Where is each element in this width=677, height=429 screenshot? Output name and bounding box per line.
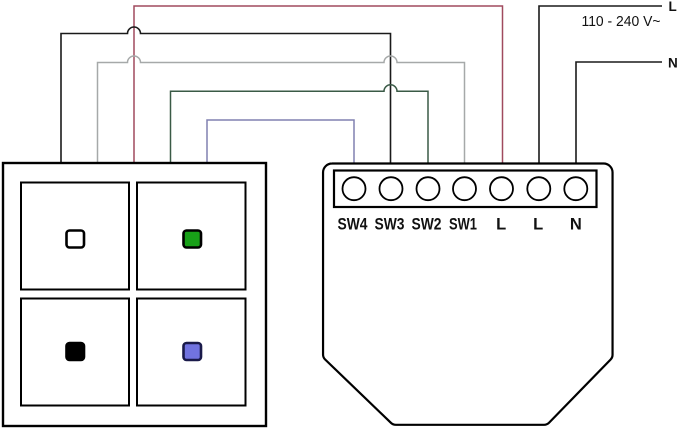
svg-text:SW3: SW3 — [375, 216, 405, 234]
svg-text:SW2: SW2 — [412, 216, 442, 234]
svg-text:SW4: SW4 — [338, 216, 369, 234]
svg-text:SW1: SW1 — [449, 216, 477, 234]
svg-text:L: L — [669, 0, 677, 14]
svg-text:110 - 240 V~: 110 - 240 V~ — [582, 14, 661, 30]
svg-text:N: N — [668, 56, 677, 71]
svg-text:L: L — [533, 216, 543, 234]
svg-text:L: L — [496, 216, 506, 234]
svg-text:N: N — [570, 216, 582, 234]
